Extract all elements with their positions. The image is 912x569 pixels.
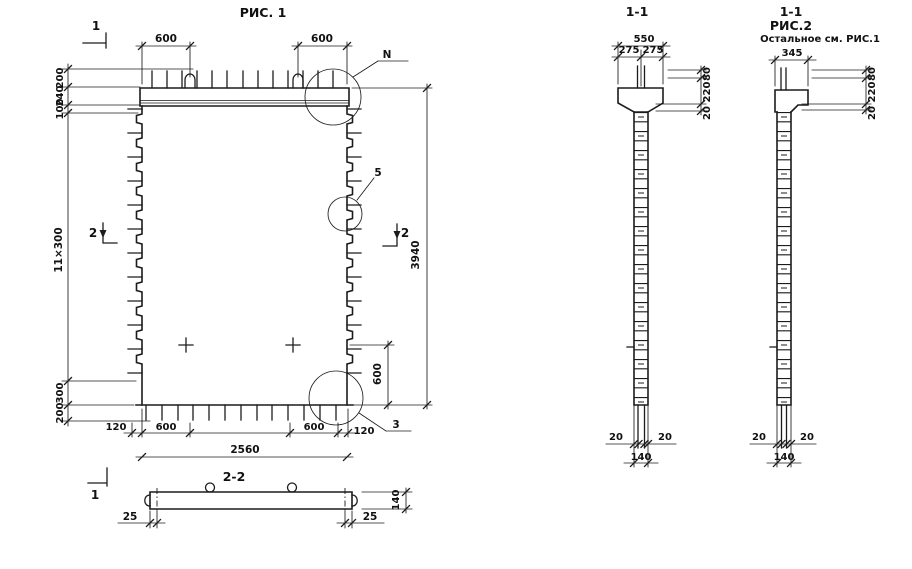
dim-width-345: 345 (769, 48, 816, 86)
bottom-rebar-dowels (146, 405, 336, 420)
detail-callout-n: N (305, 49, 408, 125)
dim-200-bottom: 200 (55, 403, 66, 424)
dim-label: 25 (123, 511, 138, 523)
section-mark-1-bottom-line (88, 468, 107, 486)
dim-thickness-140: 140 (362, 488, 412, 513)
dim-width-2560: 2560 (136, 444, 353, 461)
figure-2-note: Остальное см. РИС.1 (760, 34, 880, 45)
dim-80: 80 (702, 67, 713, 81)
section-mark-2-left: 2 (89, 223, 117, 243)
detail-callout-3: 3 (309, 371, 411, 431)
dim-275-left: 275 (619, 45, 640, 56)
dim-300: 300 (55, 383, 66, 404)
left-edge-keyed-joints (137, 106, 143, 405)
slab-end-keys (145, 495, 358, 506)
figure-2-section-title: 1-1 (780, 4, 803, 19)
section-1-1-view: 1-1 550 275 275 80 220 20 20 20 140 (606, 4, 713, 467)
dim-label: 2560 (230, 444, 259, 456)
panel-outline (136, 88, 353, 405)
section-2-2-view: 2-2 1 25 25 140 (88, 468, 412, 528)
dim-20-left: 20 (752, 432, 766, 443)
dim-lines (362, 488, 412, 513)
dim-120-left: 120 (106, 422, 127, 433)
dim-label: 25 (363, 511, 378, 523)
figure-2-section-view: 1-1 РИС.2 Остальное см. РИС.1 345 80 220… (750, 4, 880, 467)
callout-label-3: 3 (392, 419, 399, 431)
dim-label: 3940 (410, 240, 422, 269)
drawing-sheet: РИС. 1 1 600 600 (0, 0, 912, 569)
left-edge-rebar-stubs (128, 109, 142, 373)
dim-120-right: 120 (354, 426, 375, 437)
dim-600-left: 600 (156, 422, 177, 433)
dim-140: 140 (774, 452, 795, 463)
lifting-loop-left (206, 483, 215, 492)
dim-lines (769, 56, 816, 86)
dim-top-600-right: 600 (292, 33, 352, 84)
dim-20-left: 20 (609, 432, 623, 443)
section-mark-2-right-line (383, 224, 397, 246)
dim-label: 600 (372, 363, 384, 385)
section-mark-2-right-label: 2 (401, 226, 409, 240)
fixture-cross-marks (179, 338, 300, 352)
dim-200-top: 200 (55, 68, 66, 89)
right-edge-rebar-stubs (347, 109, 361, 373)
dim-100: 100 (55, 99, 66, 120)
head-rebar-dowels (781, 68, 786, 90)
dim-left-chain: 200 240 100 11×300 300 200 (53, 64, 193, 426)
dim-20-right: 20 (800, 432, 814, 443)
section-mark-2-right-arrow (394, 231, 401, 239)
dim-bottom-stack: 20 20 140 (606, 405, 676, 467)
dim-label: 600 (311, 33, 333, 45)
dim-275-right: 275 (643, 45, 664, 56)
dim-600-right: 600 (304, 422, 325, 433)
lifting-loops (185, 74, 303, 88)
section-2-2-title: 2-2 (223, 469, 246, 484)
dim-220: 220 (867, 82, 878, 103)
lifting-loop-right (288, 483, 297, 492)
section-1-1-title: 1-1 (626, 4, 649, 19)
section-mark-1-top-label: 1 (92, 19, 100, 33)
detail-callout-5: 5 (328, 167, 382, 231)
dim-right-600: 600 (350, 341, 394, 409)
dim-lines (802, 66, 871, 114)
dim-lines (292, 42, 352, 84)
dim-20: 20 (867, 106, 878, 120)
dim-right-stack: 80 220 20 (802, 66, 878, 120)
dim-right-stack: 80 220 20 (656, 66, 713, 120)
callout-label-5: 5 (374, 167, 381, 179)
slab-outline (150, 492, 352, 509)
dim-80: 80 (867, 67, 878, 81)
section-mark-2-left-label: 2 (89, 226, 97, 240)
column-head (775, 90, 808, 112)
top-rebar-dowels (152, 71, 333, 88)
dim-label: 140 (391, 490, 402, 511)
dim-20: 20 (702, 106, 713, 120)
section-mark-2-right: 2 (383, 224, 409, 246)
column-head (618, 88, 663, 112)
dim-220: 220 (702, 82, 713, 103)
top-chord-double-line (140, 101, 349, 104)
figure-1-title: РИС. 1 (240, 5, 287, 20)
dim-550: 550 (634, 34, 655, 45)
dim-label: 600 (155, 33, 177, 45)
dim-bottom-stack: 20 20 140 (750, 405, 816, 467)
dim-140: 140 (631, 452, 652, 463)
section-mark-1-bottom: 1 (88, 468, 107, 502)
technical-drawing: РИС. 1 1 600 600 (0, 0, 912, 569)
figure-2-title: РИС.2 (770, 18, 812, 33)
column-stem-ladder (634, 112, 648, 405)
column-stem-ladder (777, 112, 791, 405)
figure-1-panel-elevation: РИС. 1 1 600 600 (53, 5, 432, 461)
callout-leader-n (353, 61, 408, 77)
dim-11x300: 11×300 (53, 227, 65, 272)
right-edge-keyed-joints (347, 106, 353, 405)
section-mark-1-bottom-label: 1 (91, 488, 99, 502)
dim-label: 345 (782, 48, 803, 59)
section-mark-1-top-line (83, 33, 106, 48)
dim-top-600-left: 600 (136, 33, 196, 84)
dim-lines (62, 64, 193, 426)
detail-circle-5 (328, 197, 362, 231)
callout-label-n: N (383, 49, 392, 61)
section-mark-2-left-arrow (100, 230, 107, 238)
dim-25-left: 25 (118, 511, 165, 528)
dim-20-right: 20 (658, 432, 672, 443)
dim-width-550: 550 275 275 (612, 34, 670, 86)
dim-25-right: 25 (337, 511, 384, 528)
section-mark-1-top: 1 (83, 19, 106, 48)
